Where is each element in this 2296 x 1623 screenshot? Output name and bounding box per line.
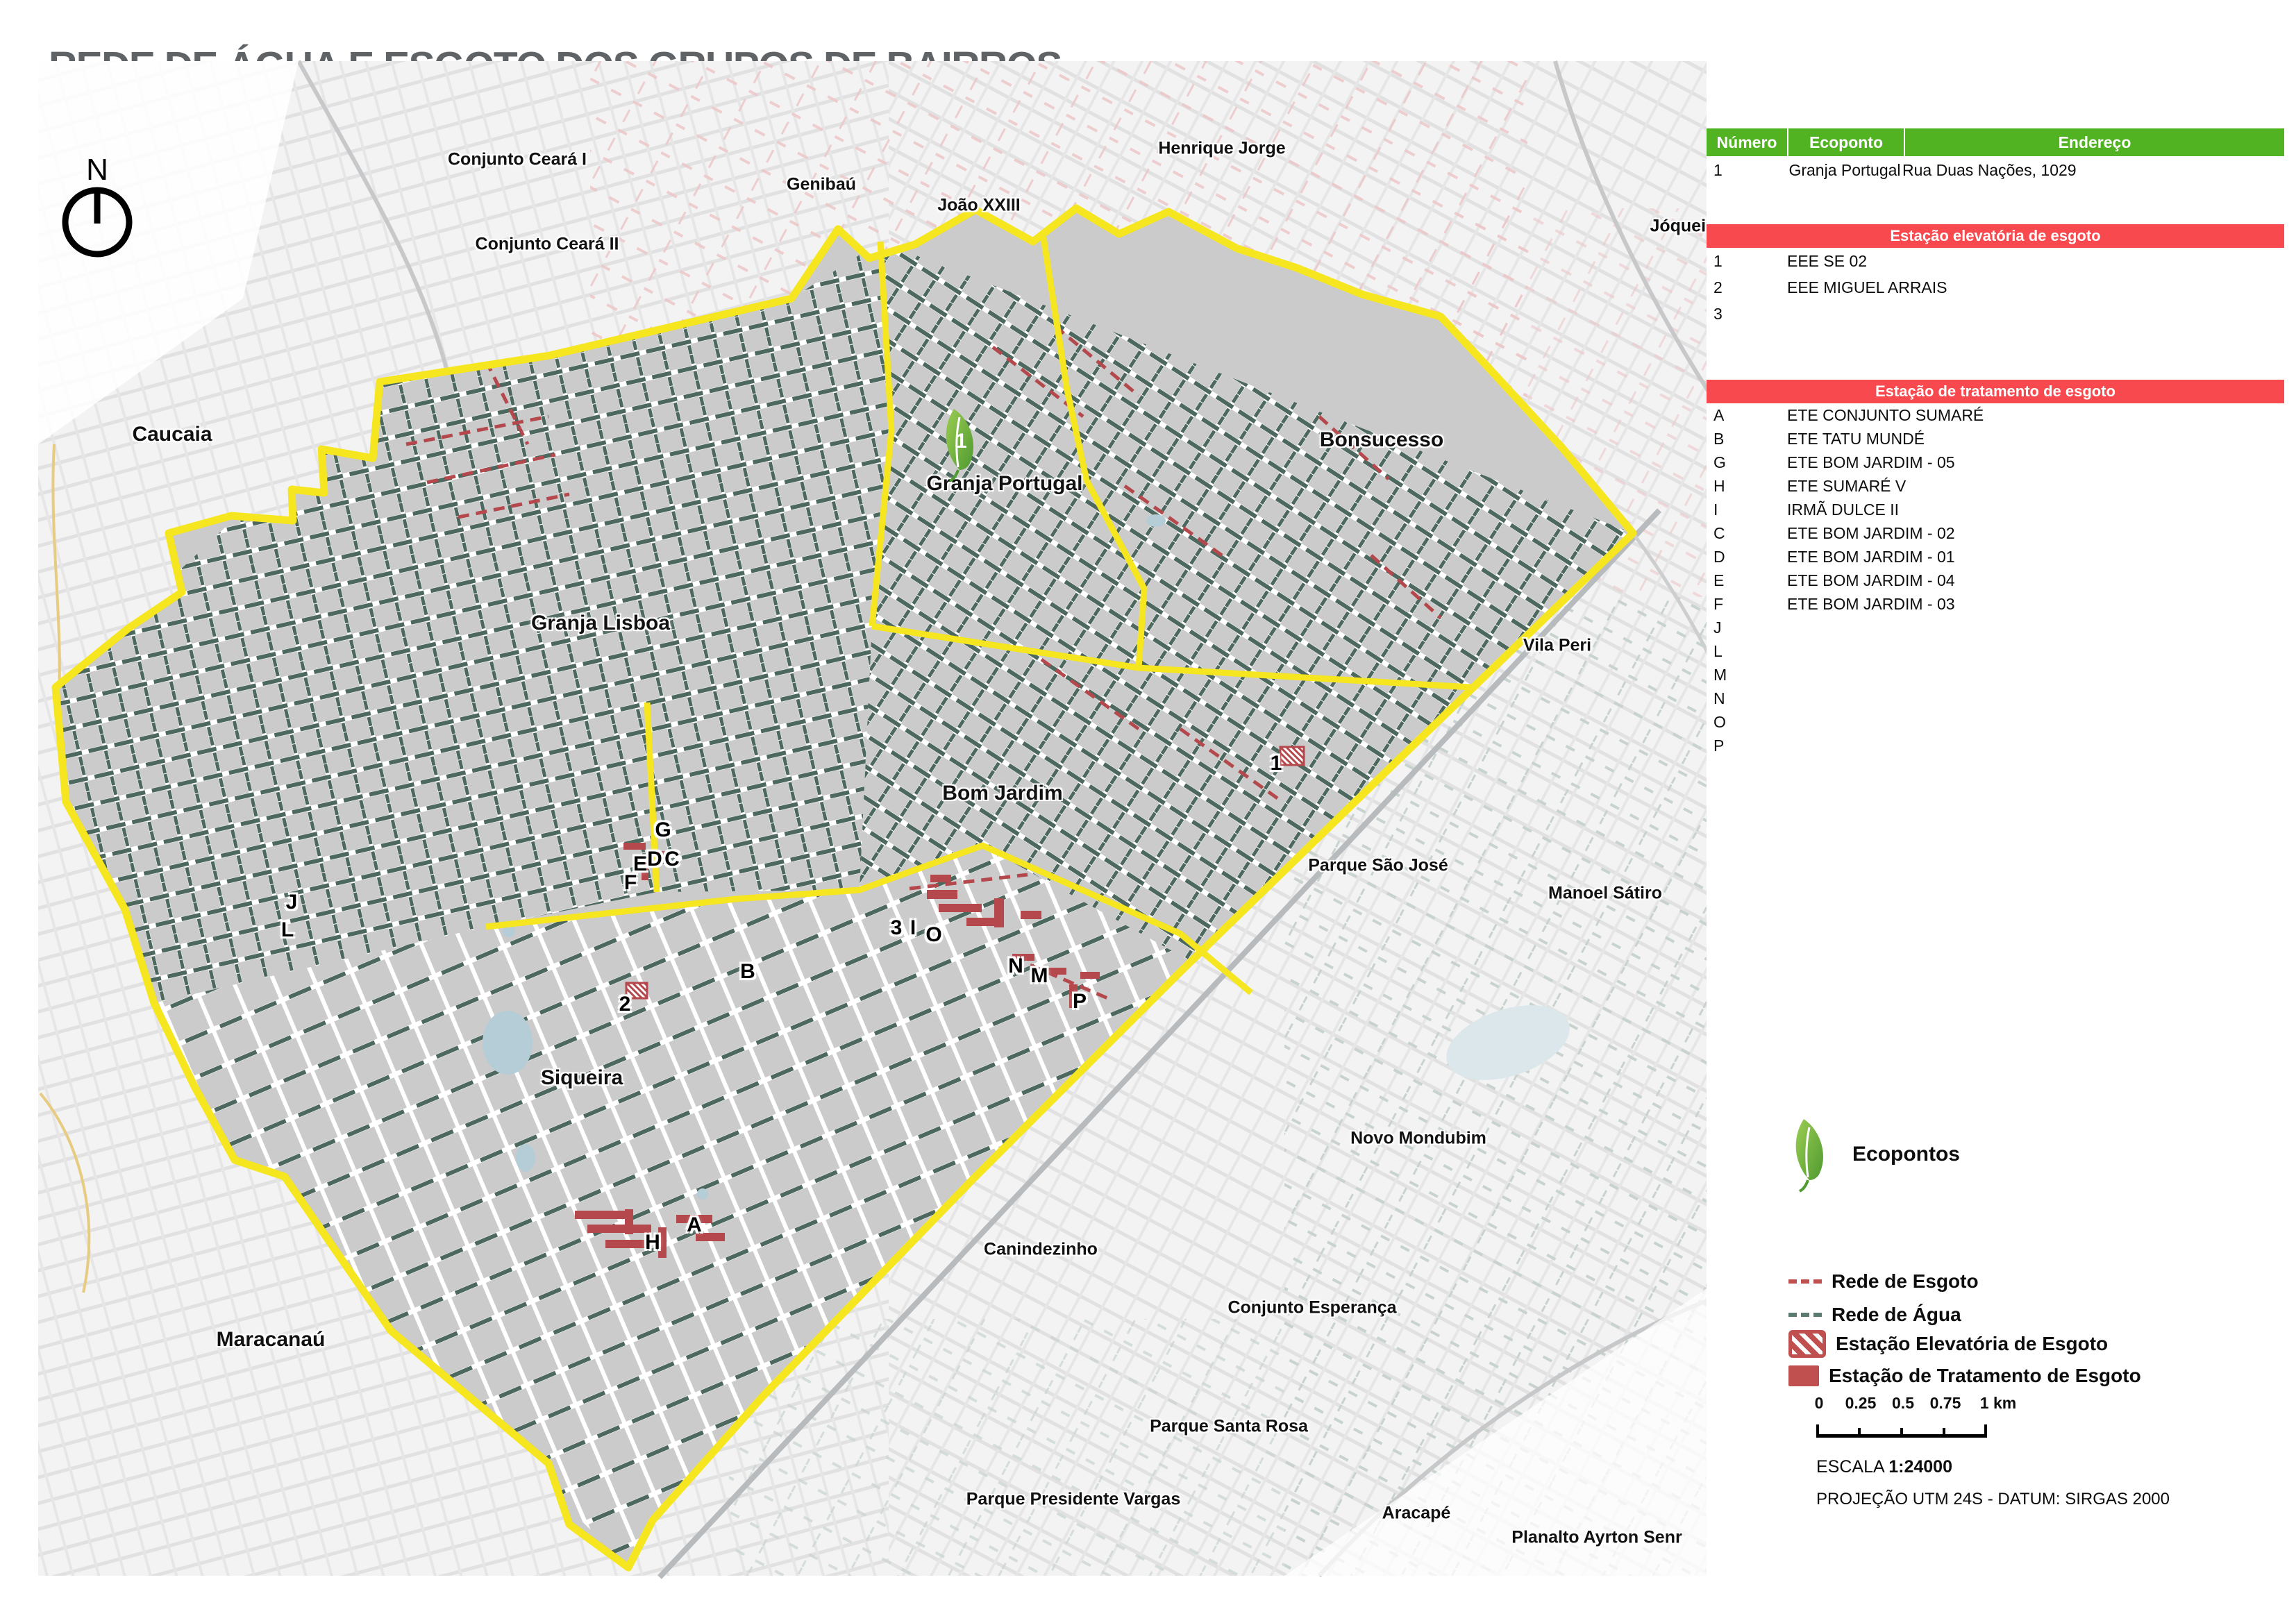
table-row: 3 bbox=[1707, 301, 2284, 327]
legend-label-ete: Estação de Tratamento de Esgoto bbox=[1829, 1365, 2141, 1387]
table-row: EETE BOM JARDIM - 04 bbox=[1707, 569, 2284, 592]
projection-text: PROJEÇÃO UTM 24S - DATUM: SIRGAS 2000 bbox=[1816, 1490, 2233, 1509]
station-marker: 1 bbox=[1271, 752, 1282, 775]
legend-label-sewer: Rede de Esgoto bbox=[1832, 1270, 1979, 1293]
table-cell: 2 bbox=[1707, 278, 1787, 297]
table-row: FETE BOM JARDIM - 03 bbox=[1707, 592, 2284, 616]
scale-tick-label: 0.5 bbox=[1892, 1394, 1914, 1413]
district-label: Parque Santa Rosa bbox=[1150, 1417, 1308, 1437]
station-marker: M bbox=[1031, 964, 1048, 988]
district-label: Bom Jardim bbox=[942, 782, 1062, 805]
table-cell: N bbox=[1707, 689, 1787, 708]
table-cell: B bbox=[1707, 430, 1787, 448]
scale-tick-labels: 00.250.50.751 km bbox=[1816, 1394, 2233, 1415]
scale-tick-label: 0 bbox=[1815, 1394, 1824, 1413]
hatched-red-box-icon bbox=[1788, 1330, 1826, 1358]
table-cell: A bbox=[1707, 406, 1787, 425]
legend-sewer-item: Rede de Esgoto bbox=[1788, 1270, 1979, 1293]
scale-tick-label: 0.75 bbox=[1930, 1394, 1961, 1413]
info-panel: Número Ecoponto Endereço 1Granja Portuga… bbox=[1707, 61, 2296, 1576]
ecopontos-table-header: Número Ecoponto Endereço bbox=[1707, 128, 2284, 156]
table-cell: ETE BOM JARDIM - 01 bbox=[1787, 548, 2284, 566]
col-header-ecoponto: Ecoponto bbox=[1788, 128, 1904, 156]
table-row: P bbox=[1707, 734, 2284, 757]
ecoponto-leaf-marker: 1 bbox=[939, 406, 980, 482]
leaf-icon bbox=[1788, 1116, 1830, 1193]
dashed-red-line-icon bbox=[1788, 1279, 1822, 1284]
district-label: João XXIII bbox=[937, 196, 1020, 216]
district-label: Aracapé bbox=[1382, 1504, 1451, 1524]
table-cell: ETE BOM JARDIM - 03 bbox=[1787, 595, 2284, 614]
north-compass: N bbox=[59, 153, 135, 264]
legend-label-eee: Estação Elevatória de Esgoto bbox=[1836, 1333, 2108, 1355]
station-marker: B bbox=[740, 960, 755, 984]
legend-eee-item: Estação Elevatória de Esgoto bbox=[1788, 1330, 2108, 1358]
station-marker: N bbox=[1008, 955, 1023, 978]
district-label: Parque São José bbox=[1308, 856, 1448, 876]
table-cell: D bbox=[1707, 548, 1787, 566]
table-cell: ETE BOM JARDIM - 02 bbox=[1787, 524, 2284, 543]
col-header-numero: Número bbox=[1707, 128, 1787, 156]
table-cell: ETE SUMARÉ V bbox=[1787, 477, 2284, 496]
eee-table-title: Estação elevatória de esgoto bbox=[1707, 224, 2284, 248]
table-cell: Rua Duas Nações, 1029 bbox=[1902, 161, 2284, 180]
compass-icon bbox=[59, 183, 135, 267]
district-label: Conjunto Ceará I bbox=[448, 150, 587, 170]
station-marker: I bbox=[910, 916, 916, 940]
map-poster: Conjunto Ceará IGenibaúJoão XXIIIHenriqu… bbox=[0, 0, 2296, 1623]
district-label: Manoel Sátiro bbox=[1548, 884, 1662, 904]
table-cell: I bbox=[1707, 501, 1787, 519]
table-cell: ETE BOM JARDIM - 05 bbox=[1787, 453, 2284, 472]
table-cell: F bbox=[1707, 595, 1787, 614]
district-label: Granja Lisboa bbox=[531, 612, 670, 635]
station-marker: 3 bbox=[891, 916, 903, 940]
table-row: N bbox=[1707, 687, 2284, 710]
table-cell: EEE SE 02 bbox=[1787, 252, 2284, 271]
scale-text: ESCALA 1:24000 bbox=[1816, 1457, 2233, 1477]
station-marker: J bbox=[286, 891, 298, 914]
district-label: Caucaia bbox=[132, 423, 212, 446]
scale-prefix: ESCALA bbox=[1816, 1457, 1884, 1477]
table-cell: M bbox=[1707, 666, 1787, 684]
table-cell: C bbox=[1707, 524, 1787, 543]
district-label: Siqueira bbox=[541, 1066, 623, 1090]
table-cell: E bbox=[1707, 571, 1787, 590]
station-marker: O bbox=[925, 923, 941, 947]
district-label: Canindezinho bbox=[984, 1240, 1098, 1260]
col-header-endereco: Endereço bbox=[1905, 128, 2284, 156]
district-label: Novo Mondubim bbox=[1350, 1129, 1486, 1149]
table-row: J bbox=[1707, 616, 2284, 639]
ecoponto-number: 1 bbox=[955, 430, 967, 453]
table-row: 1Granja PortugalRua Duas Nações, 1029 bbox=[1707, 156, 2284, 184]
scale-value: 1:24000 bbox=[1888, 1457, 1952, 1477]
district-label: Bonsucesso bbox=[1320, 428, 1443, 452]
table-row: GETE BOM JARDIM - 05 bbox=[1707, 451, 2284, 474]
table-cell: ETE TATU MUNDÉ bbox=[1787, 430, 2284, 448]
table-cell: 3 bbox=[1707, 305, 1787, 323]
legend-ecoponto-item bbox=[1788, 1116, 1830, 1193]
district-label: Vila Peri bbox=[1523, 636, 1591, 656]
scale-bar-line bbox=[1816, 1424, 1987, 1438]
table-cell: Granja Portugal bbox=[1787, 161, 1902, 180]
district-label: Conjunto Esperança bbox=[1227, 1298, 1396, 1318]
table-cell: L bbox=[1707, 642, 1787, 661]
table-row: O bbox=[1707, 710, 2284, 734]
table-row: IIRMÃ DULCE II bbox=[1707, 498, 2284, 521]
station-marker: H bbox=[645, 1231, 660, 1254]
eee-table-body: 1EEE SE 022EEE MIGUEL ARRAIS3 bbox=[1707, 248, 2284, 327]
station-marker: P bbox=[1073, 990, 1087, 1014]
ete-table-body: AETE CONJUNTO SUMARÉBETE TATU MUNDÉGETE … bbox=[1707, 403, 2284, 757]
dashed-teal-line-icon bbox=[1788, 1313, 1822, 1317]
table-cell: O bbox=[1707, 713, 1787, 732]
table-cell: J bbox=[1707, 619, 1787, 637]
table-cell: 1 bbox=[1707, 252, 1787, 271]
district-label: Planalto Ayrton Senr bbox=[1511, 1528, 1682, 1548]
ete-table: Estação de tratamento de esgoto AETE CON… bbox=[1707, 380, 2284, 757]
scale-tick-label: 0.25 bbox=[1845, 1394, 1877, 1413]
labels-layer: Conjunto Ceará IGenibaúJoão XXIIIHenriqu… bbox=[0, 0, 1767, 1623]
map-canvas: Conjunto Ceará IGenibaúJoão XXIIIHenriqu… bbox=[0, 0, 1767, 1623]
scale-tick-label: 1 km bbox=[1980, 1394, 2016, 1413]
station-marker: G bbox=[655, 818, 671, 842]
table-cell: ETE BOM JARDIM - 04 bbox=[1787, 571, 2284, 590]
ete-table-title: Estação de tratamento de esgoto bbox=[1707, 380, 2284, 403]
legend-label-ecopontos: Ecopontos bbox=[1852, 1143, 1960, 1166]
table-row: AETE CONJUNTO SUMARÉ bbox=[1707, 403, 2284, 427]
north-label: N bbox=[86, 153, 108, 187]
table-row: DETE BOM JARDIM - 01 bbox=[1707, 545, 2284, 569]
legend-label-water: Rede de Água bbox=[1832, 1304, 1961, 1326]
table-cell: 1 bbox=[1707, 161, 1787, 180]
table-row: 1EEE SE 02 bbox=[1707, 248, 2284, 274]
legend-ecopontos-label-item: Ecopontos bbox=[1843, 1143, 1960, 1166]
district-label: Genibaú bbox=[787, 175, 856, 195]
ecopontos-table-body: 1Granja PortugalRua Duas Nações, 1029 bbox=[1707, 156, 2284, 184]
station-marker: F bbox=[624, 871, 637, 895]
legend-water-item: Rede de Água bbox=[1788, 1304, 1961, 1326]
station-marker: D bbox=[647, 848, 662, 871]
table-row: HETE SUMARÉ V bbox=[1707, 474, 2284, 498]
station-marker: 2 bbox=[619, 993, 631, 1016]
legend-ete-item: Estação de Tratamento de Esgoto bbox=[1788, 1365, 2141, 1387]
solid-red-box-icon bbox=[1788, 1365, 1819, 1386]
table-cell: EEE MIGUEL ARRAIS bbox=[1787, 278, 2284, 297]
district-label: Parque Presidente Vargas bbox=[966, 1490, 1180, 1510]
table-cell: ETE CONJUNTO SUMARÉ bbox=[1787, 406, 2284, 425]
table-cell: G bbox=[1707, 453, 1787, 472]
scale-bar: 00.250.50.751 km ESCALA 1:24000 PROJEÇÃO… bbox=[1816, 1394, 2233, 1509]
station-marker: A bbox=[687, 1213, 702, 1237]
table-row: L bbox=[1707, 639, 2284, 663]
eee-table: Estação elevatória de esgoto 1EEE SE 022… bbox=[1707, 224, 2284, 327]
table-row: M bbox=[1707, 663, 2284, 687]
table-row: CETE BOM JARDIM - 02 bbox=[1707, 521, 2284, 545]
table-cell: P bbox=[1707, 737, 1787, 755]
table-cell: H bbox=[1707, 477, 1787, 496]
district-label: Maracanaú bbox=[217, 1328, 326, 1352]
district-label: Conjunto Ceará II bbox=[476, 235, 619, 255]
table-row: 2EEE MIGUEL ARRAIS bbox=[1707, 274, 2284, 301]
ecopontos-table: Número Ecoponto Endereço 1Granja Portuga… bbox=[1707, 128, 2284, 184]
table-row: BETE TATU MUNDÉ bbox=[1707, 427, 2284, 451]
district-label: Henrique Jorge bbox=[1158, 139, 1285, 159]
table-cell: IRMÃ DULCE II bbox=[1787, 501, 2284, 519]
station-marker: C bbox=[664, 848, 680, 871]
station-marker: L bbox=[281, 918, 294, 942]
